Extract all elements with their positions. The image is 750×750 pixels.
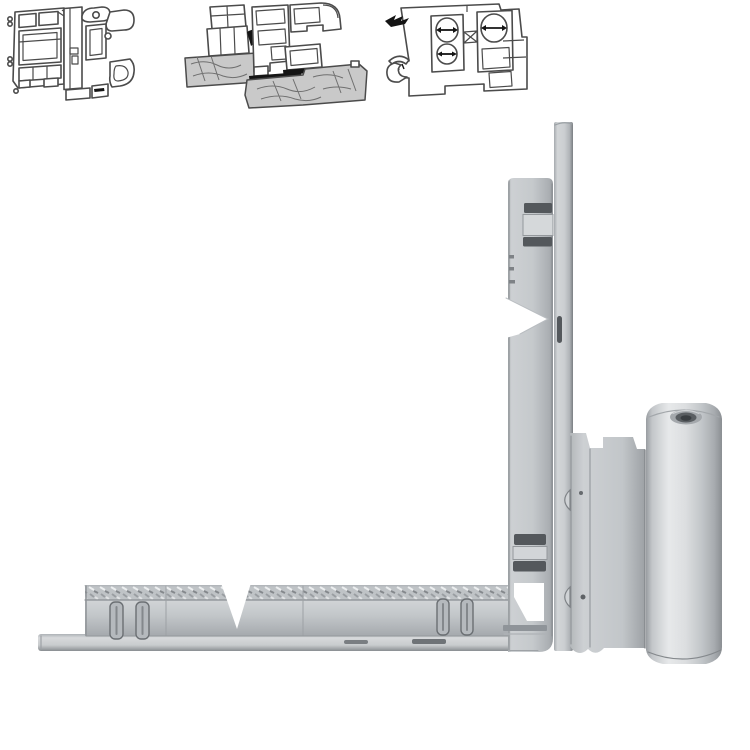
screw-slot [110,602,123,639]
corner-hinge-product-image [0,0,750,750]
horizontal-faceplate [85,583,530,639]
latch-slot [514,534,546,545]
latch-slot [523,237,552,247]
hinge-barrel [646,403,722,664]
screw-hole [579,491,583,495]
screw-hole [581,595,586,600]
screw-slot [437,599,449,635]
vertical-faceplate [503,178,553,652]
rail-notch [344,640,368,644]
corner-step [503,625,547,631]
product-image-canvas [0,0,750,750]
screw-slot [136,602,149,639]
latch-slot [524,203,552,213]
hinge-side-plate [565,433,645,653]
rail-slot [557,316,562,343]
latch-slot [513,561,546,572]
screw-slot [461,599,473,635]
latch-block [513,547,547,560]
knurled-edge [85,585,508,600]
latch-block [523,215,553,236]
rail-notch [412,639,446,644]
